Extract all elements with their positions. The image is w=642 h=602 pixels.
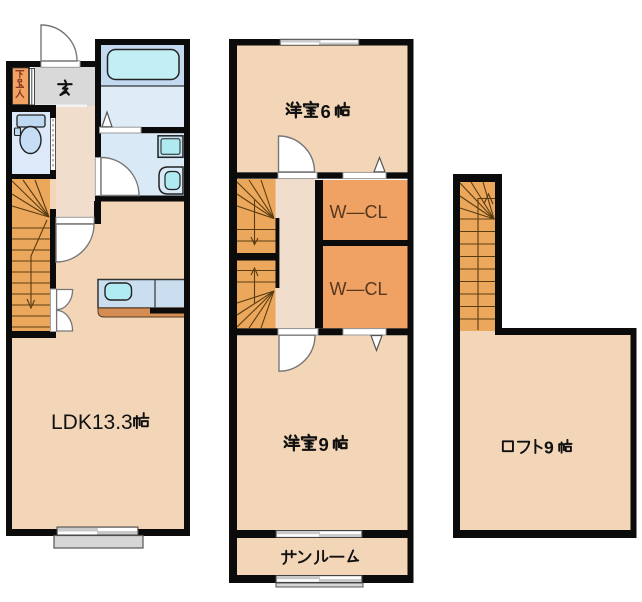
svg-text:6: 6 bbox=[321, 101, 331, 122]
svg-text:W—CL: W—CL bbox=[330, 202, 388, 222]
svg-text:W—CL: W—CL bbox=[330, 279, 388, 299]
svg-text:9: 9 bbox=[319, 434, 329, 455]
svg-text:9: 9 bbox=[544, 438, 554, 458]
svg-text:LDK13.3: LDK13.3 bbox=[51, 411, 133, 434]
